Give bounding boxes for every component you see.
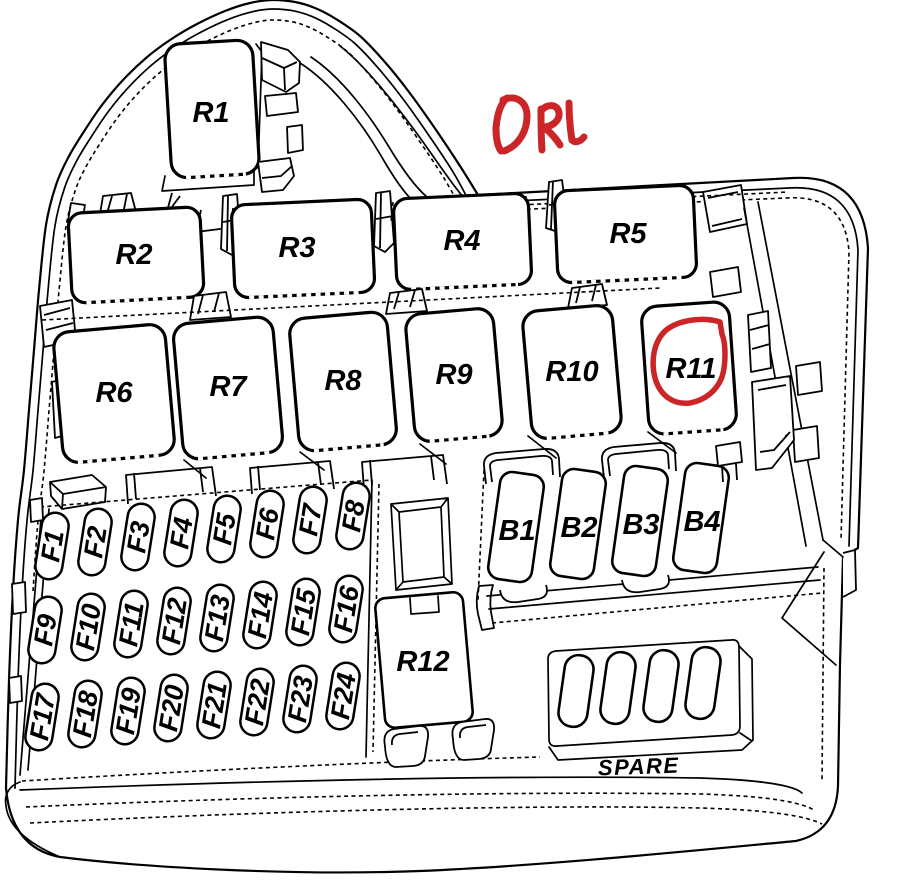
svg-text:F9: F9 [28, 612, 63, 648]
svg-text:F2: F2 [78, 524, 113, 560]
svg-text:F1: F1 [35, 528, 70, 564]
svg-text:R1: R1 [192, 97, 229, 129]
svg-text:R11: R11 [665, 353, 716, 385]
svg-text:R10: R10 [545, 356, 598, 388]
svg-text:R4: R4 [443, 225, 480, 257]
svg-text:B1: B1 [498, 515, 535, 547]
svg-text:B4: B4 [683, 506, 720, 538]
svg-text:R3: R3 [278, 232, 315, 264]
svg-text:F5: F5 [207, 510, 242, 547]
svg-text:R5: R5 [609, 218, 647, 250]
svg-text:R2: R2 [115, 239, 152, 271]
svg-text:R12: R12 [396, 646, 449, 678]
svg-text:R6: R6 [95, 377, 133, 409]
svg-text:F4: F4 [164, 515, 199, 551]
svg-text:SPARE: SPARE [597, 753, 679, 781]
svg-text:B2: B2 [560, 512, 597, 544]
svg-text:F8: F8 [336, 498, 371, 534]
svg-text:F6: F6 [250, 505, 285, 542]
svg-text:B3: B3 [622, 509, 659, 541]
svg-text:R9: R9 [435, 359, 472, 391]
svg-text:R7: R7 [209, 371, 248, 403]
svg-text:F3: F3 [121, 519, 156, 555]
svg-text:R8: R8 [324, 365, 362, 397]
